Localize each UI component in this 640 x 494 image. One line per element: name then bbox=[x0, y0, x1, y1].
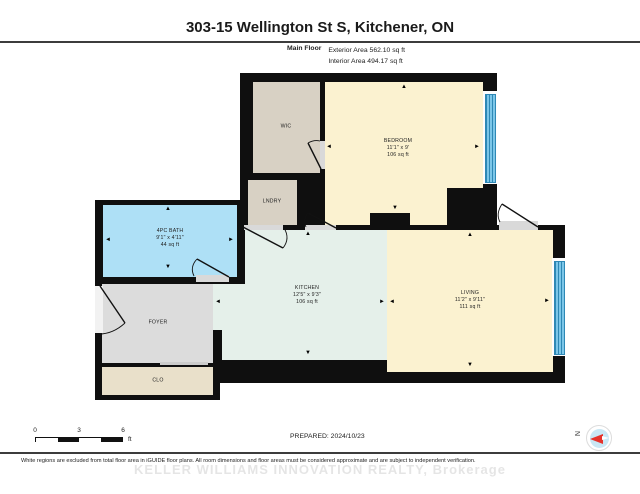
scale-bar bbox=[35, 437, 123, 442]
bath-door-opening bbox=[196, 275, 229, 282]
entry-door-opening bbox=[95, 286, 103, 333]
scale-segment bbox=[58, 438, 80, 442]
prepared-date: PREPARED: 2024/10/23 bbox=[290, 433, 365, 440]
balcony-door-arc bbox=[498, 204, 502, 222]
scale-segment bbox=[101, 438, 123, 442]
dim-arrow-down-icon: ▼ bbox=[392, 205, 398, 211]
floor-plan-page: 303-15 Wellington St S, Kitchener, ON Ma… bbox=[0, 0, 640, 494]
dim-arrow-down-icon: ▼ bbox=[165, 264, 171, 270]
bedroom-window bbox=[485, 94, 496, 183]
scale-segment bbox=[79, 438, 101, 442]
living-window bbox=[554, 261, 565, 355]
dim-arrow-right-icon: ► bbox=[474, 144, 480, 150]
dim-arrow-right-icon: ► bbox=[544, 298, 550, 304]
dim-arrow-up-icon: ▲ bbox=[165, 206, 171, 212]
wall-bedroom-notch bbox=[447, 188, 483, 225]
foyer-label: FOYER bbox=[149, 320, 168, 327]
wic-label: WIC bbox=[281, 124, 292, 131]
compass-needle-tail bbox=[602, 436, 609, 440]
living-label: LIVING 11'2" x 9'11" 111 sq ft bbox=[455, 290, 485, 310]
dim-arrow-left-icon: ◄ bbox=[326, 144, 332, 150]
dim-arrow-up-icon: ▲ bbox=[401, 84, 407, 90]
bath-label: 4PC BATH 9'1" x 4'11" 44 sq ft bbox=[156, 228, 184, 248]
scale-start-label: 0 bbox=[33, 427, 37, 434]
balcony-door-opening bbox=[499, 221, 538, 230]
scale-segment bbox=[36, 438, 58, 442]
dim-arrow-down-icon: ▼ bbox=[467, 362, 473, 368]
wall-bedroom-stub bbox=[370, 213, 410, 230]
scale-end-label: 6 bbox=[121, 427, 125, 434]
scale-mid-label: 3 bbox=[77, 427, 81, 434]
wall-foyer-kitchen-stub bbox=[213, 330, 222, 363]
compass-icon bbox=[586, 425, 612, 451]
dim-arrow-left-icon: ◄ bbox=[215, 299, 221, 305]
exterior-area: Exterior Area 562.10 sq ft bbox=[328, 45, 405, 56]
dim-arrow-up-icon: ▲ bbox=[467, 232, 473, 238]
lndry-label: LNDRY bbox=[263, 199, 282, 206]
interior-area: Interior Area 494.17 sq ft bbox=[328, 56, 405, 67]
floor-area-summary: Main Floor Exterior Area 562.10 sq ft In… bbox=[287, 45, 405, 67]
scale-unit-label: ft bbox=[128, 436, 132, 443]
compass-north-label: N bbox=[573, 431, 580, 436]
closet-slider-opening bbox=[160, 362, 208, 365]
page-title: 303-15 Wellington St S, Kitchener, ON bbox=[0, 19, 640, 36]
wic-door-opening bbox=[320, 141, 325, 169]
dim-arrow-left-icon: ◄ bbox=[389, 299, 395, 305]
lndry-door-opening bbox=[244, 225, 283, 230]
footer-divider bbox=[0, 452, 640, 454]
dim-arrow-right-icon: ► bbox=[379, 299, 385, 305]
bedroom-door-opening bbox=[305, 225, 336, 230]
bedroom-label: BEDROOM 11'1" x 9' 106 sq ft bbox=[384, 138, 412, 158]
kitchen-label: KITCHEN 12'5" x 9'3" 106 sq ft bbox=[293, 285, 321, 305]
header-divider bbox=[0, 41, 640, 43]
dim-arrow-right-icon: ► bbox=[228, 237, 234, 243]
dim-arrow-down-icon: ▼ bbox=[305, 350, 311, 356]
floor-label: Main Floor bbox=[287, 45, 321, 67]
clo-label: CLO bbox=[152, 378, 163, 385]
dim-arrow-up-icon: ▲ bbox=[305, 231, 311, 237]
brokerage-watermark: KELLER WILLIAMS INNOVATION REALTY, Broke… bbox=[134, 462, 506, 477]
dim-arrow-left-icon: ◄ bbox=[105, 237, 111, 243]
